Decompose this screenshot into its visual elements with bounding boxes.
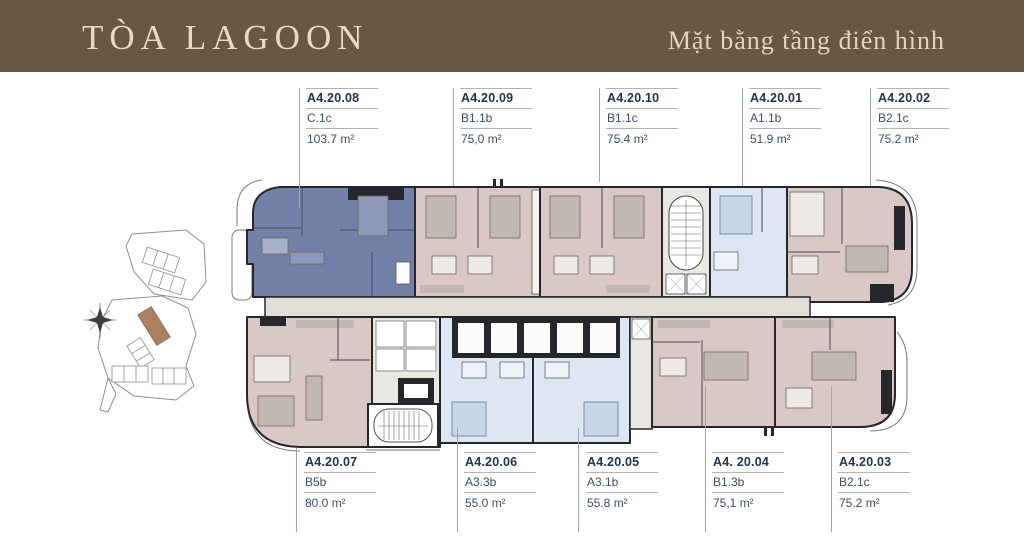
- unit-number: A4.20.03: [838, 452, 910, 473]
- unit-number: A4.20.09: [460, 88, 532, 109]
- unit-number: A4.20.05: [586, 452, 658, 473]
- unit-number: A4.20.08: [306, 88, 378, 109]
- unit-type: C.1c: [306, 109, 378, 129]
- unit-area: 103.7 m²: [306, 129, 378, 146]
- unit-type: B5b: [304, 473, 376, 493]
- unit-shape-a4-20-02: [787, 187, 912, 302]
- unit-area: 55.0 m²: [464, 493, 536, 510]
- unit-label-a4-20-10: A4.20.10 B1.1c 75.4 m²: [606, 88, 678, 146]
- unit-shape-a4-20-09: [415, 187, 546, 297]
- unit-label-a4-20-08: A4.20.08 C.1c 103.7 m²: [306, 88, 378, 146]
- unit-area: 55.8 m²: [586, 493, 658, 510]
- unit-label-a4-20-02: A4.20.02 B2.1c 75.2 m²: [877, 88, 949, 146]
- unit-area: 80.0 m²: [304, 493, 376, 510]
- unit-area: 75,1 m²: [712, 493, 784, 510]
- unit-number: A4.20.07: [304, 452, 376, 473]
- unit-area: 75.4 m²: [606, 129, 678, 146]
- stairwell-top: [662, 187, 710, 297]
- unit-shape-a4-20-01: [710, 187, 787, 297]
- unit-type: B1.3b: [712, 473, 784, 493]
- minimap-parcel-leg: [100, 378, 116, 412]
- unit-label-a4-20-09: A4.20.09 B1.1b 75,0 m²: [460, 88, 532, 146]
- unit-number: A4.20.06: [464, 452, 536, 473]
- unit-area: 51.9 m²: [749, 129, 821, 146]
- unit-number: A4.20.01: [749, 88, 821, 109]
- corridor: [265, 297, 810, 317]
- unit-shape-a4-20-08: [247, 187, 415, 297]
- unit-label-a4-20-07: A4.20.07 B5b 80.0 m²: [304, 452, 376, 510]
- unit-shape-a4-20-03: [775, 317, 895, 427]
- unit-shape-a4-20-07: [247, 317, 372, 447]
- unit-label-a4-20-03: A4.20.03 B2.1c 75.2 m²: [838, 452, 910, 510]
- unit-type: B2.1c: [838, 473, 910, 493]
- unit-number: A4.20.02: [877, 88, 949, 109]
- brochure-page: TÒA LAGOON Mặt bằng tầng điển hình: [0, 0, 1024, 541]
- stairwell-bottom: [368, 404, 438, 447]
- unit-type: A3.3b: [464, 473, 536, 493]
- unit-type: A1.1b: [749, 109, 821, 129]
- unit-number: A4.20.10: [606, 88, 678, 109]
- unit-area: 75.2 m²: [838, 493, 910, 510]
- unit-number: A4. 20.04: [712, 452, 784, 473]
- building-plan: [247, 179, 912, 447]
- site-minimap: [83, 230, 206, 412]
- unit-label-a4-20-06: A4.20.06 A3.3b 55.0 m²: [464, 452, 536, 510]
- unit-area: 75.2 m²: [877, 129, 949, 146]
- elevator-bank: [452, 318, 620, 358]
- unit-label-a4-20-01: A4.20.01 A1.1b 51.9 m²: [749, 88, 821, 146]
- service-strip: [630, 317, 652, 429]
- unit-shape-a4-20-10: [540, 187, 662, 297]
- unit-label-a4-20-05: A4.20.05 A3.1b 55.8 m²: [586, 452, 658, 510]
- unit-type: B2.1c: [877, 109, 949, 129]
- unit-area: 75,0 m²: [460, 129, 532, 146]
- unit-shape-a4-20-04: [652, 317, 775, 427]
- unit-type: B1.1b: [460, 109, 532, 129]
- unit-type: A3.1b: [586, 473, 658, 493]
- unit-label-a4-20-04: A4. 20.04 B1.3b 75,1 m²: [712, 452, 784, 510]
- unit-type: B1.1c: [606, 109, 678, 129]
